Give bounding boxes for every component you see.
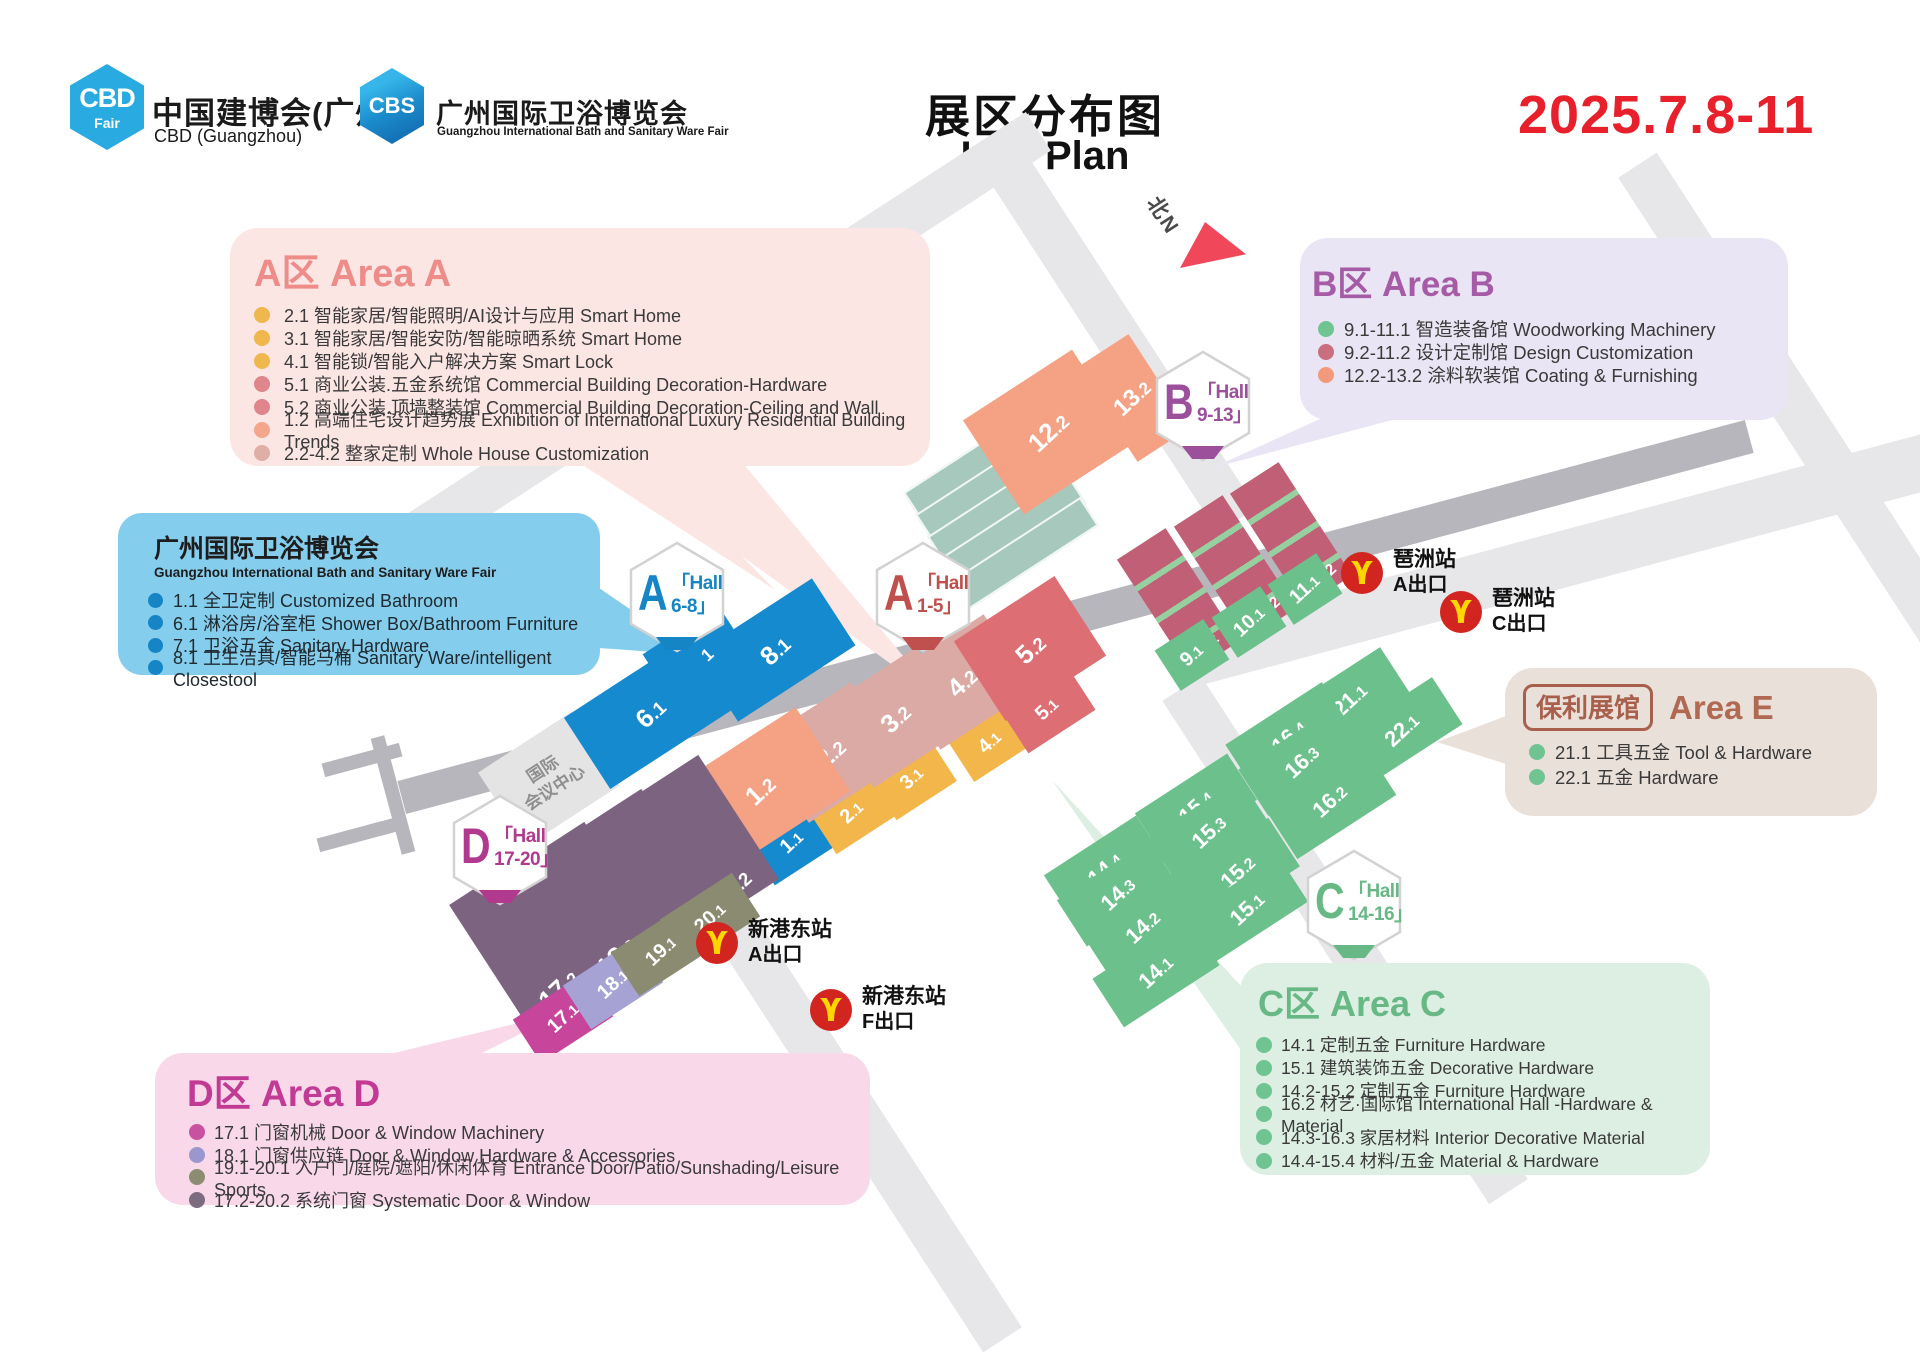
area-b-items: 9.1-11.1 智造装备馆 Woodworking Machinery9.2-… — [1318, 317, 1788, 386]
legend-item: 2.1 智能家居/智能照明/AI设计与应用 Smart Home — [254, 303, 930, 326]
station-text: 新港东站 F出口 — [862, 984, 946, 1035]
legend-item-label: 2.2-4.2 整家定制 Whole House Customization — [284, 440, 649, 466]
legend-item: 9.2-11.2 设计定制馆 Design Customization — [1318, 340, 1788, 363]
legend-dot-icon — [189, 1192, 205, 1208]
legend-item: 22.1 五金 Hardware — [1529, 764, 1877, 789]
legend-item: 15.1 建筑装饰五金 Decorative Hardware — [1256, 1056, 1710, 1079]
legend-bath-fair: 广州国际卫浴博览会 Guangzhou International Bath a… — [118, 513, 600, 675]
legend-dot-icon — [189, 1147, 205, 1163]
badge-hall-range: 「Hall14-16」 — [1348, 880, 1413, 926]
legend-item-label: 17.2-20.2 系统门窗 Systematic Door & Window — [214, 1187, 590, 1213]
legend-dot-icon — [148, 593, 163, 608]
hall-plan-page: { "header": { "cbd_logo_text": "CBD", "c… — [0, 0, 1920, 1358]
legend-dot-icon — [254, 399, 270, 415]
area-badge-A-1-5: A 「Hall1-5」 — [873, 540, 973, 654]
legend-dot-icon — [189, 1169, 205, 1185]
legend-dot-icon — [148, 638, 163, 653]
legend-item: 14.1 定制五金 Furniture Hardware — [1256, 1033, 1710, 1056]
badge-letter: A — [884, 564, 914, 622]
area-d-title: D区 Area D — [187, 1063, 870, 1117]
legend-item: 6.1 淋浴房/浴室柜 Shower Box/Bathroom Furnitur… — [148, 612, 600, 635]
metro-icon — [809, 988, 853, 1032]
hall-label: 15.1 — [1226, 887, 1269, 929]
area-d-items: 17.1 门窗机械 Door & Window Machinery18.1 门窗… — [189, 1121, 870, 1211]
legend-dot-icon — [1256, 1060, 1272, 1076]
area-b-title: B区 Area B — [1312, 256, 1788, 307]
legend-dot-icon — [1256, 1106, 1272, 1122]
area-badge-D-17-20: D 「Hall17-20」 — [450, 793, 550, 907]
area-e-items: 21.1 工具五金 Tool & Hardware22.1 五金 Hardwar… — [1529, 739, 1877, 789]
legend-area-a: A区 Area A 2.1 智能家居/智能照明/AI设计与应用 Smart Ho… — [230, 228, 930, 466]
metro-station-新港东站-A出口: 新港东站 A出口 — [695, 921, 832, 968]
legend-item-label: 14.3-16.3 家居材料 Interior Decorative Mater… — [1281, 1125, 1645, 1150]
badge-hall-range: 「Hall1-5」 — [917, 572, 968, 618]
hall-label: 16.2 — [1309, 780, 1352, 822]
hall-label: 3.2 — [875, 697, 915, 737]
badge-letter: A — [638, 564, 668, 622]
legend-dot-icon — [189, 1124, 205, 1140]
hall-label: 11.1 — [1286, 570, 1324, 607]
legend-dot-icon — [1529, 744, 1545, 760]
area-a-items: 2.1 智能家居/智能照明/AI设计与应用 Smart Home3.1 智能家居… — [254, 303, 930, 464]
legend-dot-icon — [148, 660, 163, 675]
legend-item: 14.4-15.4 材料/五金 Material & Hardware — [1256, 1149, 1710, 1172]
hall-label: 12.2 — [1023, 407, 1073, 456]
area-a-title: A区 Area A — [254, 242, 930, 297]
area-badge-A-6-8: A 「Hall6-8」 — [627, 540, 727, 654]
hall-label: 14.1 — [1135, 951, 1178, 993]
area-c-title: C区 Area C — [1258, 975, 1710, 1027]
badge-hall-range: 「Hall6-8」 — [671, 572, 722, 618]
legend-dot-icon — [1318, 321, 1334, 337]
station-name: 琶洲站 — [1492, 586, 1555, 612]
legend-area-b: B区 Area B 9.1-11.1 智造装备馆 Woodworking Mac… — [1300, 238, 1788, 420]
hall-label: 13.2 — [1110, 375, 1156, 421]
badge-hall-range: 「Hall9-13」 — [1197, 381, 1252, 427]
legend-item-label: 12.2-13.2 涂料软装馆 Coating & Furnishing — [1344, 362, 1698, 388]
station-name: 新港东站 — [748, 917, 832, 943]
metro-icon — [695, 921, 739, 965]
station-text: 新港东站 A出口 — [748, 917, 832, 968]
metro-station-新港东站-F出口: 新港东站 F出口 — [809, 988, 946, 1035]
legend-item-label: 15.1 建筑装饰五金 Decorative Hardware — [1281, 1055, 1594, 1080]
metro-station-琶洲站-C出口: 琶洲站 C出口 — [1439, 590, 1555, 637]
legend-item-label: 14.4-15.4 材料/五金 Material & Hardware — [1281, 1148, 1599, 1173]
station-name: 琶洲站 — [1393, 547, 1456, 573]
area-e-title: Area E — [1669, 689, 1774, 727]
legend-dot-icon — [254, 445, 270, 461]
legend-item: 3.1 智能家居/智能安防/智能晾晒系统 Smart Home — [254, 326, 930, 349]
legend-item: 1.2 高端住宅设计趋势展 Exhibition of Internationa… — [254, 418, 930, 441]
badge-letter: D — [461, 817, 491, 875]
legend-item: 4.1 智能锁/智能入户解决方案 Smart Lock — [254, 349, 930, 372]
legend-dot-icon — [148, 615, 163, 630]
legend-dot-icon — [254, 376, 270, 392]
area-e-venue-badge: 保利展馆 — [1523, 684, 1653, 731]
legend-item: 21.1 工具五金 Tool & Hardware — [1529, 739, 1877, 764]
legend-item: 9.1-11.1 智造装备馆 Woodworking Machinery — [1318, 317, 1788, 340]
station-text: 琶洲站 C出口 — [1492, 586, 1555, 637]
hall-label: 22.1 — [1381, 709, 1424, 751]
metro-icon — [1340, 551, 1384, 595]
area-badge-B-9-13: B 「Hall9-13」 — [1153, 349, 1253, 463]
badge-letter: B — [1164, 373, 1194, 431]
hall-label: 4.1 — [975, 727, 1006, 757]
hall-label: 5.1 — [1032, 693, 1063, 723]
hall-label: 8.1 — [755, 630, 795, 670]
metro-icon — [1439, 590, 1483, 634]
hall-label: 10.1 — [1230, 603, 1269, 641]
station-name: 新港东站 — [862, 984, 946, 1010]
legend-item: 19.1-20.1 入户门/庭院/遮阳/休闲体育 Entrance Door/P… — [189, 1166, 870, 1189]
legend-item: 8.1 卫生洁具/智能马桶 Sanitary Ware/intelligent … — [148, 657, 600, 680]
badge-hall-range: 「Hall17-20」 — [494, 825, 559, 871]
area-badge-C-14-16: C 「Hall14-16」 — [1304, 848, 1404, 962]
legend-area-c: C区 Area C 14.1 定制五金 Furniture Hardware15… — [1240, 963, 1710, 1175]
legend-dot-icon — [1256, 1037, 1272, 1053]
station-exit: C出口 — [1492, 612, 1555, 637]
legend-item: 16.2 材艺·国际馆 International Hall -Hardware… — [1256, 1103, 1710, 1126]
legend-item-label: 14.1 定制五金 Furniture Hardware — [1281, 1032, 1546, 1057]
legend-dot-icon — [254, 330, 270, 346]
legend-dot-icon — [1256, 1129, 1272, 1145]
legend-item: 17.1 门窗机械 Door & Window Machinery — [189, 1121, 870, 1144]
area-e-header: 保利展馆 Area E — [1523, 684, 1877, 731]
legend-item-label: 21.1 工具五金 Tool & Hardware — [1555, 739, 1812, 765]
legend-dot-icon — [1318, 344, 1334, 360]
bath-fair-subtitle: Guangzhou International Bath and Sanitar… — [154, 565, 600, 580]
hall-label: 6.1 — [630, 692, 670, 732]
legend-item: 12.2-13.2 涂料软装馆 Coating & Furnishing — [1318, 363, 1788, 386]
badge-letter: C — [1315, 872, 1345, 930]
legend-dot-icon — [1256, 1153, 1272, 1169]
legend-item-label: 22.1 五金 Hardware — [1555, 764, 1718, 790]
hall-label: 1.2 — [740, 770, 780, 810]
legend-dot-icon — [254, 307, 270, 323]
legend-area-d: D区 Area D 17.1 门窗机械 Door & Window Machin… — [155, 1053, 870, 1205]
station-exit: F出口 — [862, 1010, 946, 1035]
station-exit: A出口 — [748, 943, 832, 968]
bath-fair-title: 广州国际卫浴博览会 — [154, 529, 600, 565]
legend-dot-icon — [254, 422, 270, 438]
hall-label: 5.2 — [1010, 628, 1050, 668]
bath-fair-items: 1.1 全卫定制 Customized Bathroom6.1 淋浴房/浴室柜 … — [148, 589, 600, 679]
legend-item: 1.1 全卫定制 Customized Bathroom — [148, 589, 600, 612]
legend-item-label: 8.1 卫生洁具/智能马桶 Sanitary Ware/intelligent … — [173, 644, 600, 691]
legend-dot-icon — [1529, 769, 1545, 785]
legend-dot-icon — [254, 353, 270, 369]
legend-item: 14.3-16.3 家居材料 Interior Decorative Mater… — [1256, 1126, 1710, 1149]
legend-dot-icon — [1318, 367, 1334, 383]
area-c-items: 14.1 定制五金 Furniture Hardware15.1 建筑装饰五金 … — [1256, 1033, 1710, 1172]
legend-item: 5.1 商业公装.五金系统馆 Commercial Building Decor… — [254, 372, 930, 395]
legend-dot-icon — [1256, 1083, 1272, 1099]
hall-label: 9.1 — [1177, 640, 1208, 670]
legend-area-e: 保利展馆 Area E 21.1 工具五金 Tool & Hardware22.… — [1505, 668, 1877, 816]
